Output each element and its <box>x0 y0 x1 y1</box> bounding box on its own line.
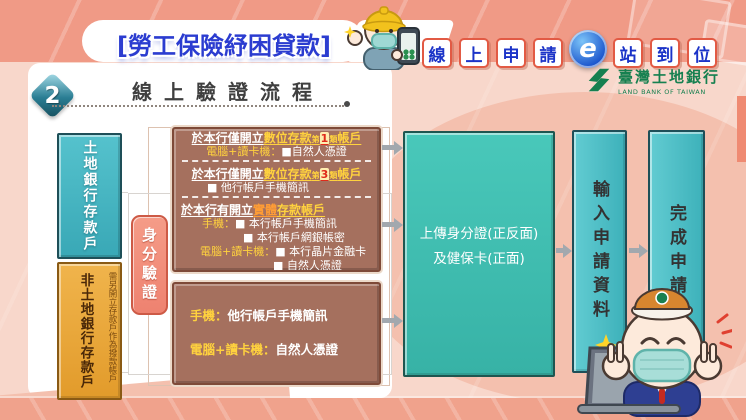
arrow-right-icon <box>629 248 639 253</box>
page-title: [勞工保險紓困貸款] <box>90 26 358 61</box>
landbank-verification-methods-box: 於本行僅開立數位存款第1類帳戶電腦+讀卡機：■自然人憑證於本行僅開立數位存款第3… <box>172 127 381 272</box>
arrow-right-icon <box>382 318 394 323</box>
right-edge-strip <box>737 96 746 162</box>
physical-account-header: 於本行有開立實體存款帳戶 <box>177 203 376 217</box>
physical-method-phone-2: ■ 本行帳戶網銀帳密 <box>177 231 376 245</box>
slogan-char: 站 <box>613 38 643 68</box>
arrow-right-icon <box>382 145 394 150</box>
type3-method: ■ 他行帳戶手機簡訊 <box>177 181 376 195</box>
section-number-badge: 2 <box>29 72 76 119</box>
other-bank-verification-methods-box: 手機：他行帳戶手機簡訊電腦+讀卡機：自然人憑證 <box>172 282 381 385</box>
non-landbank-depositor-label: 非土地銀行存款戶 <box>76 273 96 389</box>
slogan-char: 上 <box>459 38 489 68</box>
non-landbank-depositor-note: 需另開立存款戶作為撥款帳戶 <box>106 272 118 394</box>
slogan-char: 到 <box>650 38 680 68</box>
slogan: 線上申請 e 站到位 <box>422 30 717 68</box>
dashed-divider <box>182 196 371 202</box>
landbank-depositor-box: 土地銀行存款戶 <box>57 133 122 259</box>
slogan-char: 申 <box>496 38 526 68</box>
other-bank-method-pc: 電腦+讀卡機：自然人憑證 <box>190 342 379 358</box>
land-bank-emblem-icon <box>585 66 613 94</box>
bank-logo: 臺灣土地銀行 LAND BANK OF TAIWAN <box>585 66 720 96</box>
bank-clerk-mascot-icon <box>572 286 732 418</box>
other-bank-method-phone: 手機：他行帳戶手機簡訊 <box>190 308 379 324</box>
worker-mascot-icon <box>338 0 430 70</box>
upload-line1: 上傳身分證(正反面) <box>420 222 539 247</box>
non-landbank-depositor-box: 非土地銀行存款戶 需另開立存款戶作為撥款帳戶 <box>57 262 122 400</box>
bank-name-zh: 臺灣土地銀行 <box>618 66 720 87</box>
slogan-char: 位 <box>687 38 717 68</box>
upload-id-box: 上傳身分證(正反面) 及健保卡(正面) <box>403 131 555 377</box>
e-badge-icon: e <box>569 30 607 68</box>
identity-verification-box: 身分驗證 <box>131 215 168 315</box>
slogan-char: 請 <box>533 38 563 68</box>
type1-method: 電腦+讀卡機：■自然人憑證 <box>177 145 376 159</box>
slogan-left-chars: 線上申請 <box>422 38 563 68</box>
bank-name-en: LAND BANK OF TAIWAN <box>618 88 720 96</box>
section-title: 線上驗證流程 <box>132 76 324 105</box>
upload-line2: 及健保卡(正面) <box>433 247 525 272</box>
slogan-char: 線 <box>422 38 452 68</box>
infographic-slide: [勞工保險紓困貸款] 線上申請 e 站到位 臺灣土地銀行 <box>0 0 746 420</box>
digital-account-type3-header: 於本行僅開立數位存款第3類帳戶 <box>177 167 376 181</box>
physical-method-phone-1: 手機：■ 本行帳戶手機簡訊 <box>177 217 376 231</box>
landbank-depositor-label: 土地銀行存款戶 <box>80 140 100 252</box>
identity-verification-label: 身分驗證 <box>139 227 160 303</box>
arrow-right-icon <box>382 222 394 227</box>
physical-method-pc-2: ■ 自然人憑證 <box>177 259 376 272</box>
physical-method-pc-1: 電腦+讀卡機：■ 本行晶片金融卡 <box>177 245 376 259</box>
dashed-divider <box>182 160 371 166</box>
slogan-right-chars: 站到位 <box>613 38 717 68</box>
dotted-underline <box>52 105 344 107</box>
digital-account-type1-header: 於本行僅開立數位存款第1類帳戶 <box>177 131 376 145</box>
dotted-line-end-dot <box>344 101 350 107</box>
arrow-right-icon <box>556 248 563 253</box>
